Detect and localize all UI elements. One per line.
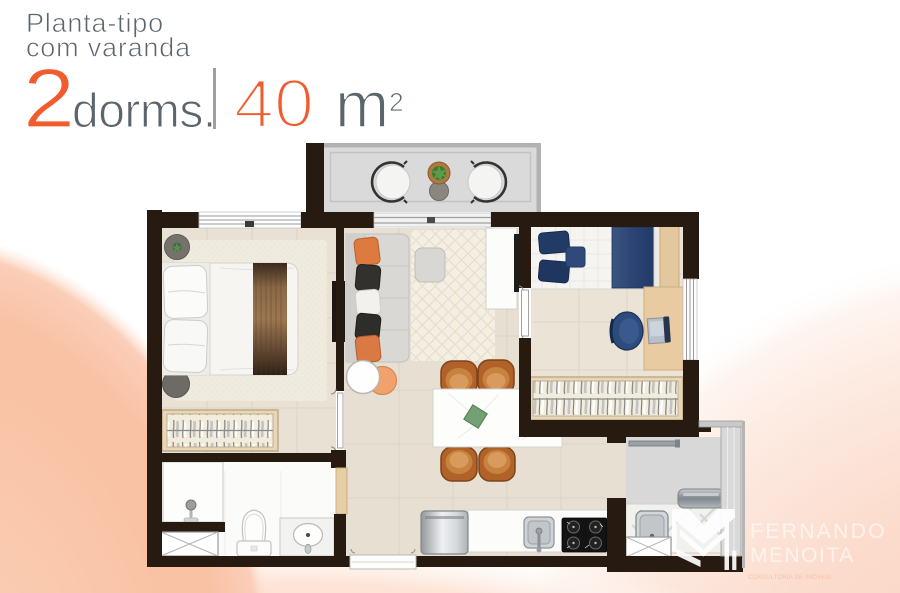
- svg-text:2: 2: [23, 52, 75, 145]
- svg-text:CONSULTORIA DE IMÓVEIS: CONSULTORIA DE IMÓVEIS: [748, 574, 832, 581]
- svg-text:FERNANDO: FERNANDO: [750, 520, 887, 543]
- svg-text:dorms.: dorms.: [72, 85, 216, 138]
- svg-text:40: 40: [234, 65, 314, 142]
- svg-text:MENOITA: MENOITA: [750, 544, 855, 567]
